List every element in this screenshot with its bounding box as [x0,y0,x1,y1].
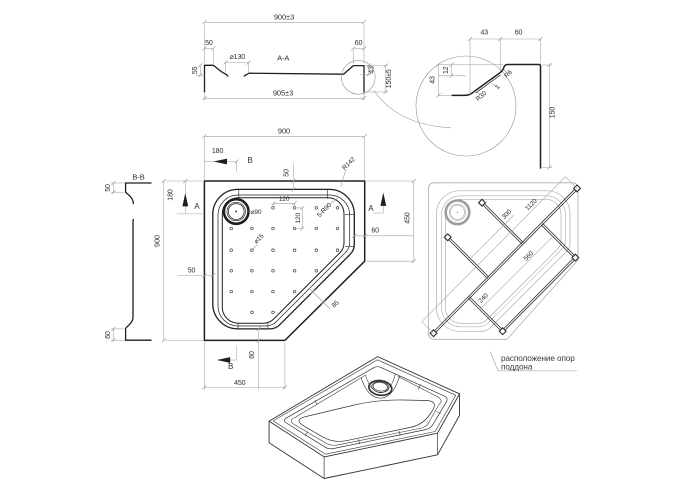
svg-text:150±5: 150±5 [386,69,393,88]
svg-text:450: 450 [234,380,246,387]
svg-text:43: 43 [429,76,436,84]
svg-text:60: 60 [249,351,256,359]
svg-text:43: 43 [481,30,489,37]
svg-text:12: 12 [443,66,450,74]
svg-text:50: 50 [205,40,213,47]
svg-text:55: 55 [192,66,199,74]
svg-text:120: 120 [279,196,290,203]
svg-text:900±3: 900±3 [274,13,294,22]
svg-text:60: 60 [355,40,363,47]
svg-text:B: B [247,156,252,165]
svg-text:A: A [194,202,200,211]
svg-text:A: A [368,204,374,213]
svg-text:150: 150 [550,107,557,119]
svg-text:180: 180 [167,189,174,201]
svg-text:60: 60 [515,30,523,37]
svg-text:60: 60 [371,228,379,235]
svg-text:905±3: 905±3 [273,89,293,98]
svg-text:50: 50 [105,184,112,192]
svg-text:A-A: A-A [277,54,289,63]
svg-text:900: 900 [278,126,290,135]
svg-text:120: 120 [295,212,302,223]
svg-text:50: 50 [284,169,291,177]
svg-text:B-B: B-B [132,173,144,182]
svg-text:⌀90: ⌀90 [251,209,262,216]
svg-text:450: 450 [404,212,411,224]
svg-text:900: 900 [152,235,161,247]
svg-text:B: B [228,362,233,371]
svg-text:поддона: поддона [501,363,533,372]
svg-text:⌀130: ⌀130 [230,54,246,61]
svg-text:180: 180 [212,148,224,155]
svg-text:60: 60 [105,331,112,339]
svg-text:50: 50 [188,268,196,275]
